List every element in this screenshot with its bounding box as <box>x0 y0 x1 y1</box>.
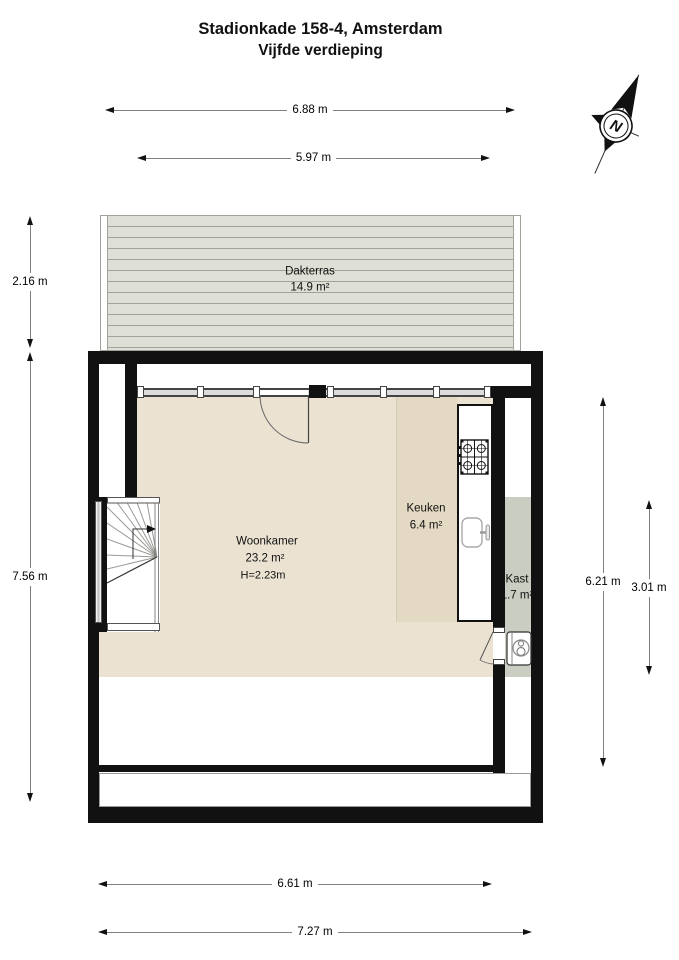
arrow-up-icon <box>27 352 33 361</box>
deck-edge-right <box>513 216 520 350</box>
stairs-window <box>95 501 102 623</box>
kast-door-post <box>493 659 505 665</box>
arrow-down-icon <box>27 339 33 348</box>
window-mullion <box>433 386 440 398</box>
arrow-right-icon <box>506 107 515 113</box>
boiler-icon <box>506 631 532 667</box>
wall-kast-lower <box>493 664 505 773</box>
woonkamer-floor-below-stairs <box>99 632 137 677</box>
dimension-top-inner: 5.97 m <box>137 151 490 165</box>
wall-stub-left <box>125 364 137 497</box>
window-mullion <box>197 386 204 398</box>
dimension-value: 2.16 m <box>12 273 47 291</box>
page-title: Stadionkade 158-4, Amsterdam <box>0 20 641 39</box>
kast-label: Kast <box>505 573 528 586</box>
window-mullion <box>137 386 144 398</box>
dimension-value: 6.88 m <box>287 104 332 116</box>
arrow-left-icon <box>105 107 114 113</box>
keuken-area-label: 6.4 m² <box>410 519 443 532</box>
arrow-right-icon <box>481 155 490 161</box>
arrow-up-icon <box>27 216 33 225</box>
wall-right <box>531 351 543 823</box>
dimension-value: 6.21 m <box>585 573 620 591</box>
woonkamer-area-label: 23.2 m² <box>246 552 285 565</box>
dakterras-area-label: 14.9 m² <box>291 281 330 294</box>
dimension-value: 7.56 m <box>12 568 47 586</box>
dimension-bottom-outer: 7.27 m <box>98 925 532 939</box>
sink-icon <box>460 516 492 550</box>
floor-plan: Stadionkade 158-4, Amsterdam Vijfde verd… <box>0 0 679 960</box>
dimension-value: 7.27 m <box>292 926 337 938</box>
wall-interior-lower <box>99 765 493 772</box>
wall-bottom <box>88 807 543 823</box>
roof-edge-strip <box>99 773 531 807</box>
page-subtitle: Vijfde verdieping <box>0 42 641 60</box>
arrow-left-icon <box>98 929 107 935</box>
kitchen-counter <box>457 404 493 622</box>
arrow-left-icon <box>98 881 107 887</box>
wall-right-of-facade <box>490 386 531 398</box>
balcony-door-swing-icon <box>258 395 310 445</box>
kast-door-swing-icon <box>478 631 494 666</box>
window-mullion <box>484 386 491 398</box>
arrow-up-icon <box>646 500 652 509</box>
dimension-top-outer: 6.88 m <box>105 103 515 117</box>
woonkamer-label: Woonkamer <box>236 535 298 548</box>
keuken-label: Keuken <box>406 502 445 515</box>
dimension-value: 6.61 m <box>272 878 317 890</box>
arrow-up-icon <box>600 397 606 406</box>
arrow-down-icon <box>600 758 606 767</box>
arrow-right-icon <box>483 881 492 887</box>
window-mullion <box>327 386 334 398</box>
arrow-down-icon <box>27 793 33 802</box>
dimension-right-depth: 6.21 m <box>581 397 625 767</box>
wall-top <box>88 351 543 364</box>
dimension-right-kast: 3.01 m <box>627 500 671 675</box>
arrow-down-icon <box>646 666 652 675</box>
arrow-left-icon <box>137 155 146 161</box>
dimension-value: 3.01 m <box>631 579 666 597</box>
dimension-left-terrace: 2.16 m <box>8 216 52 348</box>
woonkamer-height-label: H=2.23m <box>241 570 286 583</box>
dimension-value: 5.97 m <box>291 152 336 164</box>
kast-door-post <box>493 627 505 633</box>
deck-edge-left <box>101 216 108 350</box>
dimension-bottom-inner: 6.61 m <box>98 877 492 891</box>
door-pier <box>309 385 326 398</box>
window-mullion <box>380 386 387 398</box>
arrow-right-icon <box>523 929 532 935</box>
dimension-left-building: 7.56 m <box>8 352 52 802</box>
dakterras-label: Dakterras <box>285 265 335 278</box>
stove-icon <box>459 439 489 475</box>
kast-area-label: 1.7 m² <box>501 589 534 602</box>
staircase <box>107 497 160 632</box>
compass-north-icon: N <box>570 64 662 184</box>
